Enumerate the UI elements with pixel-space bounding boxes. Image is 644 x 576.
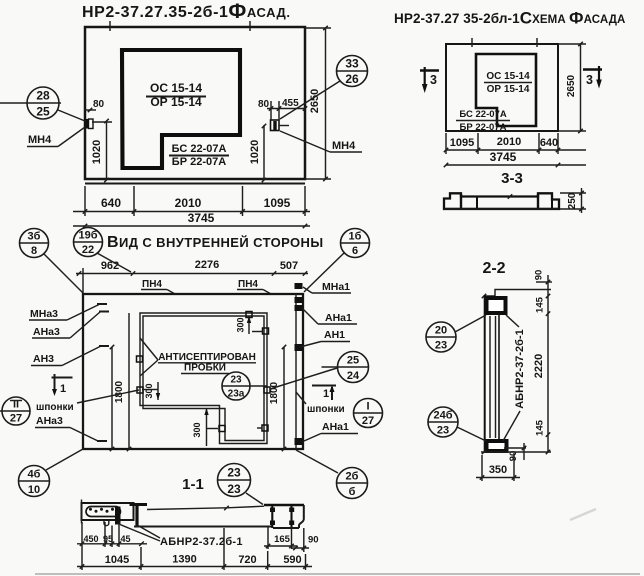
svg-text:АБНР2-37.2б-1: АБНР2-37.2б-1 xyxy=(160,536,243,548)
svg-text:ПН4: ПН4 xyxy=(142,279,162,290)
svg-text:350: 350 xyxy=(489,464,507,476)
svg-text:ПРОБКИ: ПРОБКИ xyxy=(184,363,226,374)
svg-text:1390: 1390 xyxy=(172,554,196,566)
svg-text:80: 80 xyxy=(93,99,105,110)
svg-text:БС 22-07А: БС 22-07А xyxy=(172,143,227,155)
svg-text:АНа3: АНа3 xyxy=(36,415,63,427)
svg-text:23: 23 xyxy=(227,466,241,480)
svg-text:33: 33 xyxy=(345,57,359,71)
svg-text:507: 507 xyxy=(280,260,298,272)
svg-text:4б: 4б xyxy=(28,469,41,481)
svg-text:АН1: АН1 xyxy=(324,329,345,341)
svg-text:250: 250 xyxy=(567,192,578,209)
svg-text:145: 145 xyxy=(535,419,546,436)
svg-text:2650: 2650 xyxy=(566,74,577,97)
svg-text:23а: 23а xyxy=(228,389,245,400)
svg-text:24: 24 xyxy=(347,370,360,382)
svg-text:ВИД С ВНУТРЕННЕЙ СТОРОНЫ: ВИД С ВНУТРЕННЕЙ СТОРОНЫ xyxy=(107,234,323,251)
svg-text:1: 1 xyxy=(60,383,66,395)
svg-text:ПН4: ПН4 xyxy=(238,279,258,290)
svg-text:90: 90 xyxy=(534,270,545,281)
svg-text:1б: 1б xyxy=(349,231,362,243)
svg-text:3745: 3745 xyxy=(188,211,215,225)
svg-text:АБНР2-37-2б-1: АБНР2-37-2б-1 xyxy=(514,329,526,409)
svg-text:АНа3: АНа3 xyxy=(33,326,60,338)
svg-text:2650: 2650 xyxy=(309,89,321,113)
svg-text:10: 10 xyxy=(28,484,40,496)
svg-text:БР 22-07А: БР 22-07А xyxy=(172,156,226,168)
svg-text:1045: 1045 xyxy=(105,554,129,566)
svg-text:2-2: 2-2 xyxy=(482,260,505,277)
svg-text:3б: 3б xyxy=(28,231,41,243)
svg-text:300: 300 xyxy=(236,317,246,332)
svg-text:23: 23 xyxy=(437,425,449,437)
svg-text:1800: 1800 xyxy=(114,380,125,403)
svg-text:1095: 1095 xyxy=(264,196,291,210)
svg-text:ОС 15-14: ОС 15-14 xyxy=(150,81,202,95)
svg-text:1-1: 1-1 xyxy=(182,476,204,493)
svg-text:1: 1 xyxy=(323,388,329,400)
svg-text:БР 22-07А: БР 22-07А xyxy=(460,122,507,133)
svg-text:ОС 15-14: ОС 15-14 xyxy=(486,71,530,82)
svg-text:19б: 19б xyxy=(78,230,97,242)
svg-text:22: 22 xyxy=(82,244,94,256)
svg-text:27: 27 xyxy=(10,413,22,425)
svg-text:ОР 15-14: ОР 15-14 xyxy=(487,84,530,95)
svg-text:МНа1: МНа1 xyxy=(322,281,350,293)
svg-text:720: 720 xyxy=(238,554,256,566)
svg-text:24б: 24б xyxy=(433,410,452,422)
svg-text:640: 640 xyxy=(101,196,121,210)
svg-text:АНа1: АНа1 xyxy=(322,421,349,433)
svg-text:шпонки: шпонки xyxy=(307,404,345,415)
svg-text:23: 23 xyxy=(230,375,242,386)
svg-text:МНа3: МНа3 xyxy=(30,308,58,320)
svg-text:27: 27 xyxy=(362,415,374,427)
svg-text:45: 45 xyxy=(120,534,130,544)
svg-text:962: 962 xyxy=(101,260,119,272)
svg-text:АН3: АН3 xyxy=(33,353,54,365)
svg-text:165: 165 xyxy=(274,534,291,545)
svg-text:МН4: МН4 xyxy=(28,134,52,146)
svg-text:2б: 2б xyxy=(346,471,359,483)
svg-text:6: 6 xyxy=(352,245,358,257)
svg-text:2010: 2010 xyxy=(175,196,202,210)
svg-text:АНТИСЕПТИРОВАН: АНТИСЕПТИРОВАН xyxy=(158,352,256,363)
svg-text:1020: 1020 xyxy=(249,140,261,164)
svg-text:1800: 1800 xyxy=(269,381,280,404)
svg-text:1020: 1020 xyxy=(91,140,103,164)
svg-text:3745: 3745 xyxy=(490,150,517,164)
svg-text:АНа1: АНа1 xyxy=(325,312,352,324)
svg-text:шпонки: шпонки xyxy=(36,402,74,413)
svg-text:28: 28 xyxy=(36,89,50,103)
svg-text:145: 145 xyxy=(535,296,546,313)
svg-text:2010: 2010 xyxy=(497,136,521,148)
svg-text:23: 23 xyxy=(435,340,447,352)
svg-text:450: 450 xyxy=(83,534,98,544)
svg-text:300: 300 xyxy=(192,422,202,437)
svg-text:90: 90 xyxy=(308,535,319,546)
svg-text:25: 25 xyxy=(36,105,50,119)
svg-text:20: 20 xyxy=(435,325,447,337)
svg-text:590: 590 xyxy=(283,554,301,566)
svg-text:БС 22-07А: БС 22-07А xyxy=(459,109,507,120)
svg-text:640: 640 xyxy=(540,137,558,149)
svg-text:3-3: 3-3 xyxy=(501,170,523,187)
svg-text:455: 455 xyxy=(282,98,299,109)
svg-text:26: 26 xyxy=(345,72,359,86)
svg-text:1095: 1095 xyxy=(450,137,474,149)
svg-text:3: 3 xyxy=(430,73,437,87)
svg-text:25: 25 xyxy=(347,355,359,367)
svg-text:б: б xyxy=(349,486,356,498)
svg-text:300: 300 xyxy=(144,383,154,398)
svg-text:23: 23 xyxy=(227,482,241,496)
svg-text:8: 8 xyxy=(31,245,37,257)
svg-text:ОР 15-14: ОР 15-14 xyxy=(150,95,202,109)
svg-text:I: I xyxy=(366,401,369,413)
svg-text:2220: 2220 xyxy=(533,354,545,378)
svg-text:2276: 2276 xyxy=(195,259,219,271)
svg-text:МН4: МН4 xyxy=(332,140,356,152)
svg-text:3: 3 xyxy=(586,73,593,87)
